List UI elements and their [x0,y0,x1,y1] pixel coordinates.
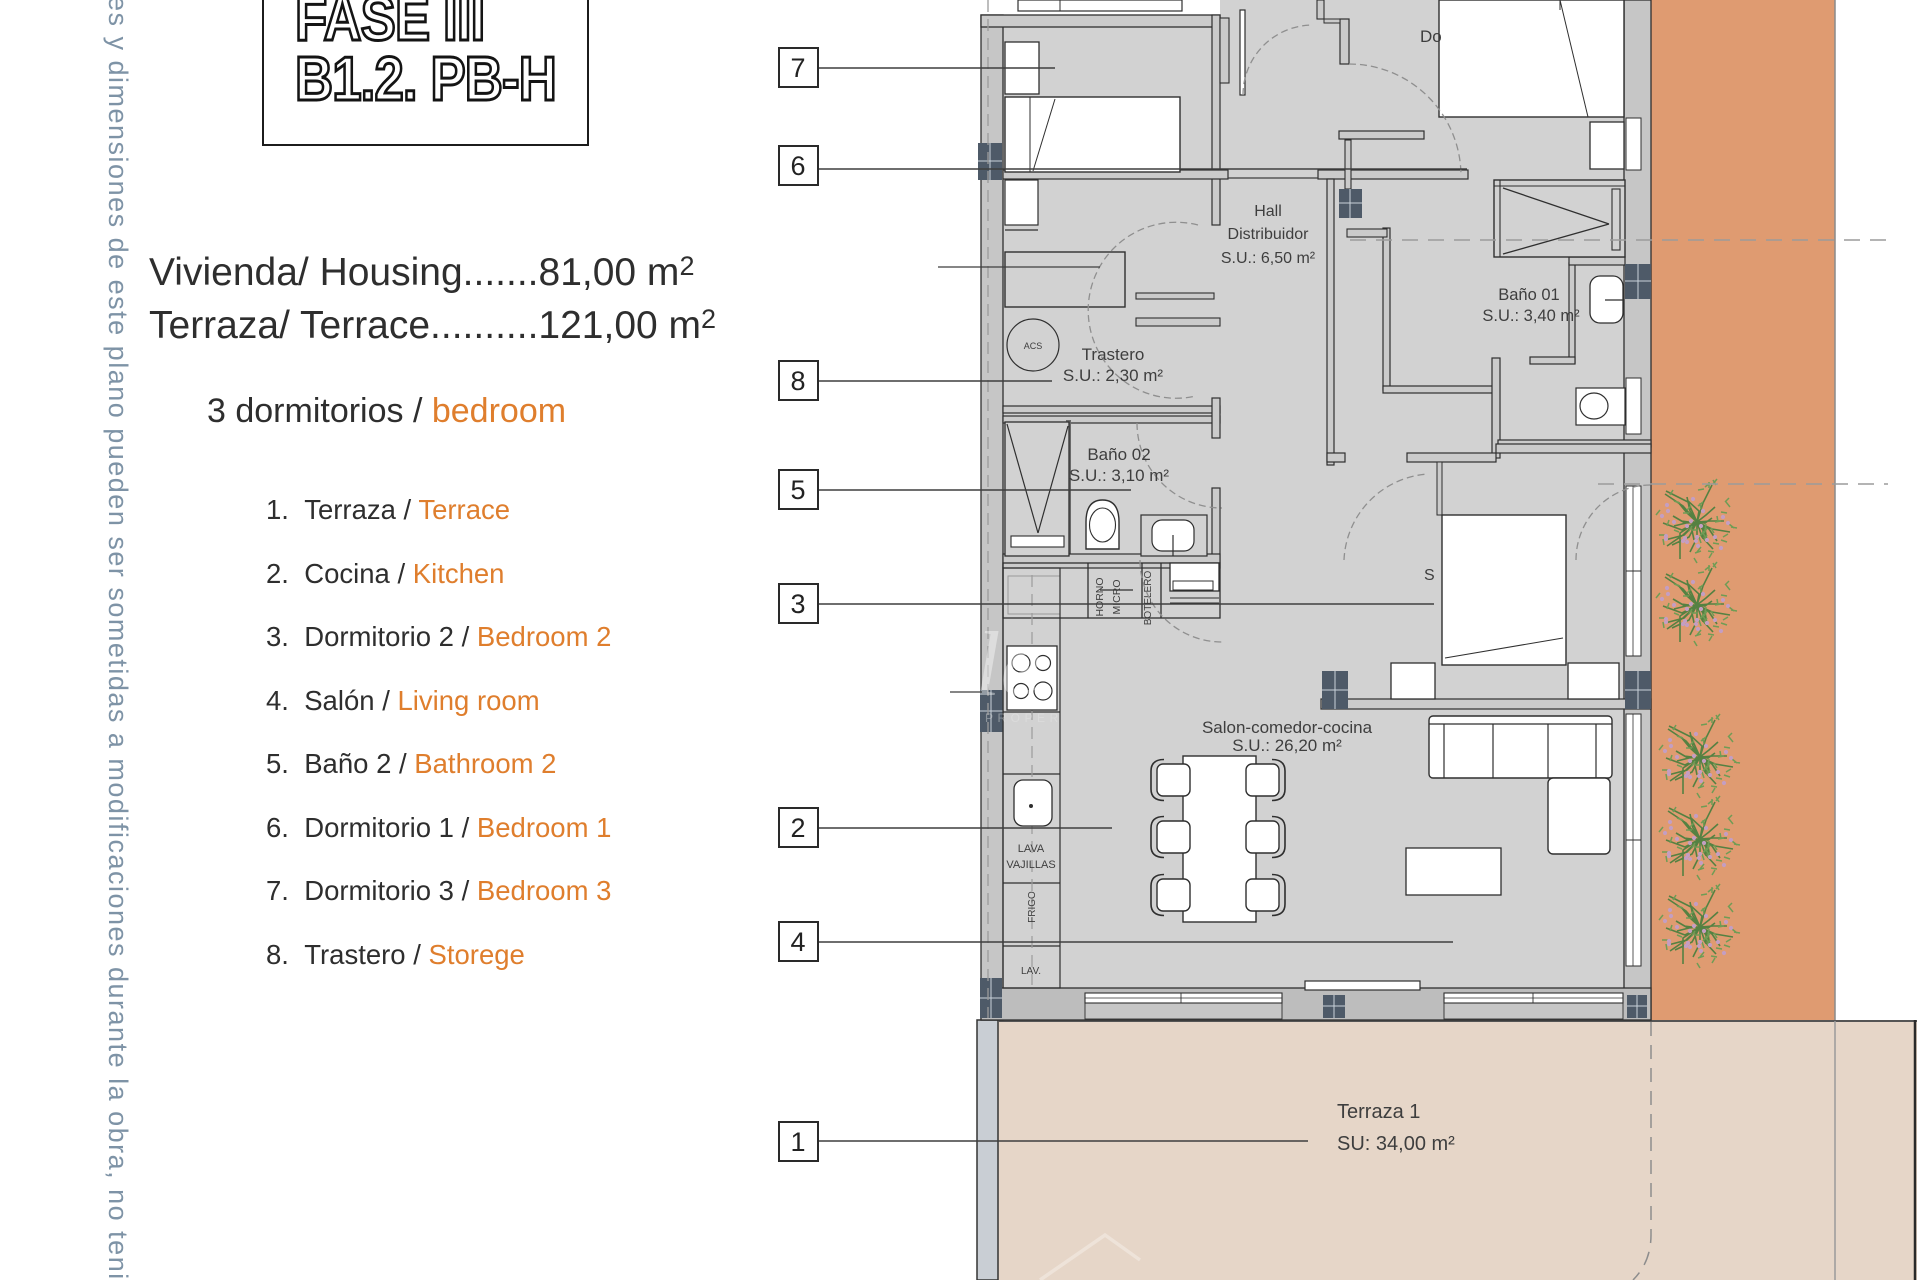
svg-text:S.U.: 2,30 m²: S.U.: 2,30 m² [1063,366,1163,385]
svg-text:Salon-comedor-cocina: Salon-comedor-cocina [1202,718,1373,737]
svg-text:LAVA: LAVA [1018,843,1045,855]
svg-text:4: 4 [790,927,805,957]
svg-text:1: 1 [790,1127,805,1157]
svg-text:8: 8 [790,366,805,396]
svg-text:PROPER: PROPER [985,711,1063,725]
svg-text:3: 3 [790,589,805,619]
svg-text:6: 6 [790,151,805,181]
svg-text:Baño 02: Baño 02 [1087,445,1150,464]
svg-text:ACS: ACS [1024,341,1043,351]
svg-text:5: 5 [790,475,805,505]
svg-text:S.U.: 6,50 m²: S.U.: 6,50 m² [1221,250,1316,267]
svg-text:S.U.: 26,20 m²: S.U.: 26,20 m² [1232,736,1342,755]
svg-text:Terraza 1: Terraza 1 [1337,1101,1420,1123]
svg-text:SU: 34,00 m²: SU: 34,00 m² [1337,1133,1455,1155]
svg-text:Distribuidor: Distribuidor [1228,226,1310,243]
svg-text:Baño 01: Baño 01 [1498,286,1559,304]
svg-text:Hall: Hall [1254,203,1282,220]
svg-text:7: 7 [790,53,805,83]
svg-text:BOTELERO: BOTELERO [1143,571,1154,626]
svg-text:le: le [975,613,1041,715]
svg-text:2: 2 [790,813,805,843]
svg-text:VAJILLAS: VAJILLAS [1006,859,1055,871]
svg-text:Do: Do [1420,27,1442,46]
svg-text:S: S [1424,567,1435,584]
svg-text:FRIGO: FRIGO [1027,891,1038,923]
svg-text:S.U.: 3,40 m²: S.U.: 3,40 m² [1482,307,1580,325]
svg-text:HORNO: HORNO [1094,577,1106,616]
svg-text:LAV.: LAV. [1021,966,1041,977]
svg-text:MICRO: MICRO [1111,580,1123,615]
svg-text:Trastero: Trastero [1082,345,1145,364]
svg-text:S.U.: 3,10 m²: S.U.: 3,10 m² [1069,466,1169,485]
